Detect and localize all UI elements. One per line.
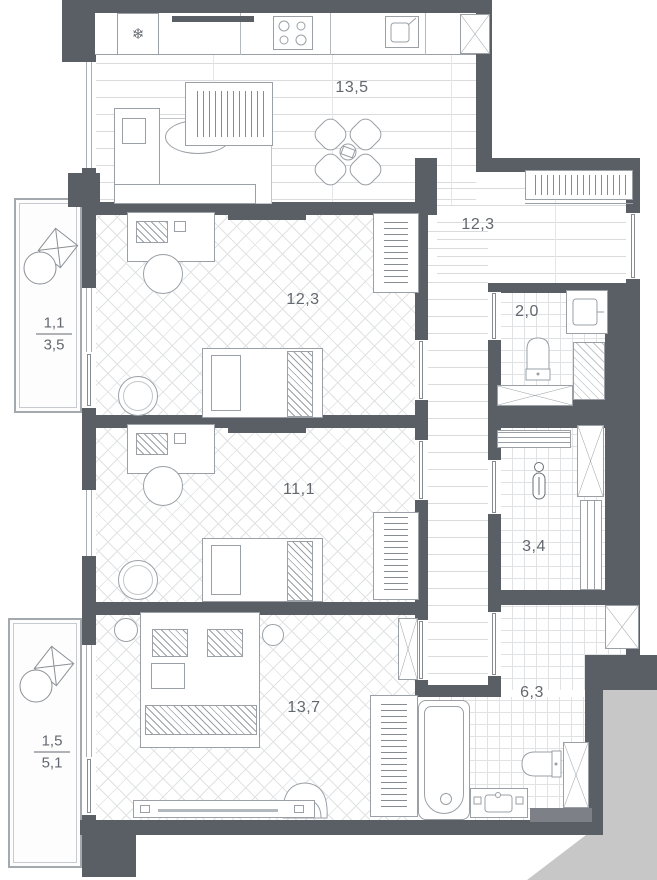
wall-block-wc-right — [605, 283, 626, 410]
desk-lamp — [174, 221, 186, 232]
balcony-lower-area-over: 1,5 — [34, 732, 70, 751]
duct-shaft — [577, 425, 604, 497]
kitchen-window — [82, 62, 96, 168]
threshold-cabinet — [530, 808, 592, 822]
rug-ring — [123, 565, 153, 595]
rug-ring — [123, 381, 153, 411]
wc-door-leaf — [492, 293, 496, 339]
wall-top — [80, 0, 492, 14]
bathroom-door-leaf — [492, 461, 496, 513]
single-bed — [202, 348, 323, 418]
counter-divider — [425, 13, 426, 55]
balcony-upper-area-under: 3,5 — [36, 336, 72, 355]
bedroom-1-door-leaf — [419, 341, 423, 399]
room-area-label: 6,3 — [520, 684, 544, 702]
bathtub-drain — [440, 793, 452, 805]
coat-rack — [525, 170, 633, 200]
tv-stand — [133, 800, 315, 818]
balcony-chair-table-icon — [18, 220, 80, 292]
hangers-hatch — [384, 218, 408, 288]
single-bed — [202, 538, 323, 602]
wall-pier-top-left — [62, 0, 83, 62]
double-bed — [140, 612, 260, 748]
desk-lamp — [174, 433, 186, 444]
bathtub — [418, 700, 470, 820]
vanity-sink-icon — [470, 788, 528, 818]
bedroom-3-door-leaf — [419, 621, 423, 679]
room-area-label: 12,3 — [286, 291, 319, 309]
storage-cabinet — [497, 385, 573, 406]
fraction-bar — [34, 752, 70, 753]
room-area-label: 3,4 — [522, 538, 546, 556]
balcony-upper-area-label: 1,1 3,5 — [36, 314, 72, 355]
room-area-label: 11,1 — [283, 481, 315, 499]
curtain-rail-bar — [228, 428, 306, 433]
linen-cabinet — [398, 618, 418, 680]
round-rug — [118, 376, 158, 416]
pillow — [207, 629, 243, 657]
pipe-riser — [580, 500, 602, 590]
desk-items — [136, 433, 168, 455]
blanket-hatch — [287, 351, 313, 417]
desk-chair — [143, 466, 183, 506]
washbasin-icon — [566, 290, 608, 334]
water-heater-icon — [528, 460, 550, 502]
bedroom-2-window — [82, 490, 96, 556]
pillow — [211, 545, 241, 595]
wardrobe — [370, 695, 418, 817]
round-rug — [118, 560, 158, 600]
toilet-icon — [516, 747, 566, 781]
fraction-bar — [36, 334, 72, 335]
shelf-lines — [497, 430, 571, 448]
refrigerator-icon: ❄ — [117, 13, 159, 55]
bedside-table — [114, 618, 138, 642]
balcony-lower-area-label: 1,5 5,1 — [34, 732, 70, 773]
hangers-hatch — [381, 700, 407, 812]
apartment-floor-plan: 1,1 3,5 1,5 5,1 — [0, 0, 657, 880]
counter-divider — [330, 13, 331, 55]
bedside-table — [262, 624, 284, 646]
wall-corner-bottom-left — [82, 835, 136, 877]
duct-shaft — [573, 342, 605, 400]
desk — [127, 424, 215, 474]
balcony-lower-area-under: 5,1 — [34, 754, 70, 773]
wardrobe — [373, 213, 419, 293]
sofa-chaise — [114, 184, 256, 204]
bedroom-1-window — [82, 288, 96, 352]
hangers-hatch — [530, 175, 628, 195]
room-area-label: 12,3 — [461, 216, 494, 234]
wall-bottom — [80, 820, 603, 835]
balcony-lower-door-leaf — [87, 759, 91, 813]
hangers-hatch — [384, 517, 408, 595]
storage-cabinet — [605, 605, 639, 649]
tv-bar — [158, 809, 278, 812]
wall-corridor-end — [415, 685, 501, 697]
room-area-label: 13,5 — [335, 79, 368, 97]
bedroom-2-door-leaf — [419, 441, 423, 499]
pillow — [211, 355, 241, 411]
kitchen-sink-icon — [385, 16, 419, 48]
sofa-cushion — [122, 118, 146, 144]
cabinet-contents-hatch — [192, 91, 266, 137]
curtain-rail-bar — [228, 215, 306, 220]
wall-block-bathroom-right — [605, 410, 626, 605]
coat-rack-shelf-line — [525, 203, 633, 204]
room-area-label: 13,7 — [287, 699, 320, 717]
blanket-hatch — [145, 705, 257, 735]
room-area-label: 2,0 — [515, 303, 539, 321]
tv-cabinet — [185, 82, 273, 146]
tv-stand-item — [140, 805, 150, 813]
shower-room-door-leaf — [492, 613, 496, 675]
stove-icon — [273, 16, 313, 50]
wardrobe — [373, 512, 419, 600]
balcony-upper-area-over: 1,1 — [36, 314, 72, 333]
desk-chair — [143, 254, 183, 294]
tv-stand-item — [294, 805, 304, 813]
pillow — [152, 629, 188, 657]
desk-items — [136, 221, 168, 243]
corridor-floor — [428, 215, 488, 685]
bedroom-3-window — [82, 645, 96, 757]
dining-table-icon — [303, 107, 393, 197]
blanket-hatch — [287, 541, 313, 601]
kitchen-shelf-bar — [172, 16, 254, 22]
toilet-icon — [520, 333, 556, 383]
entrance-door-leaf — [631, 214, 635, 278]
wall-pier-junction — [415, 158, 437, 215]
desk — [127, 212, 215, 262]
balcony-chair-table-icon — [14, 638, 76, 710]
balcony-upper-door-leaf — [87, 354, 91, 406]
duct-shaft — [460, 14, 490, 54]
washing-machine — [563, 742, 589, 808]
bed-tray — [151, 663, 185, 689]
